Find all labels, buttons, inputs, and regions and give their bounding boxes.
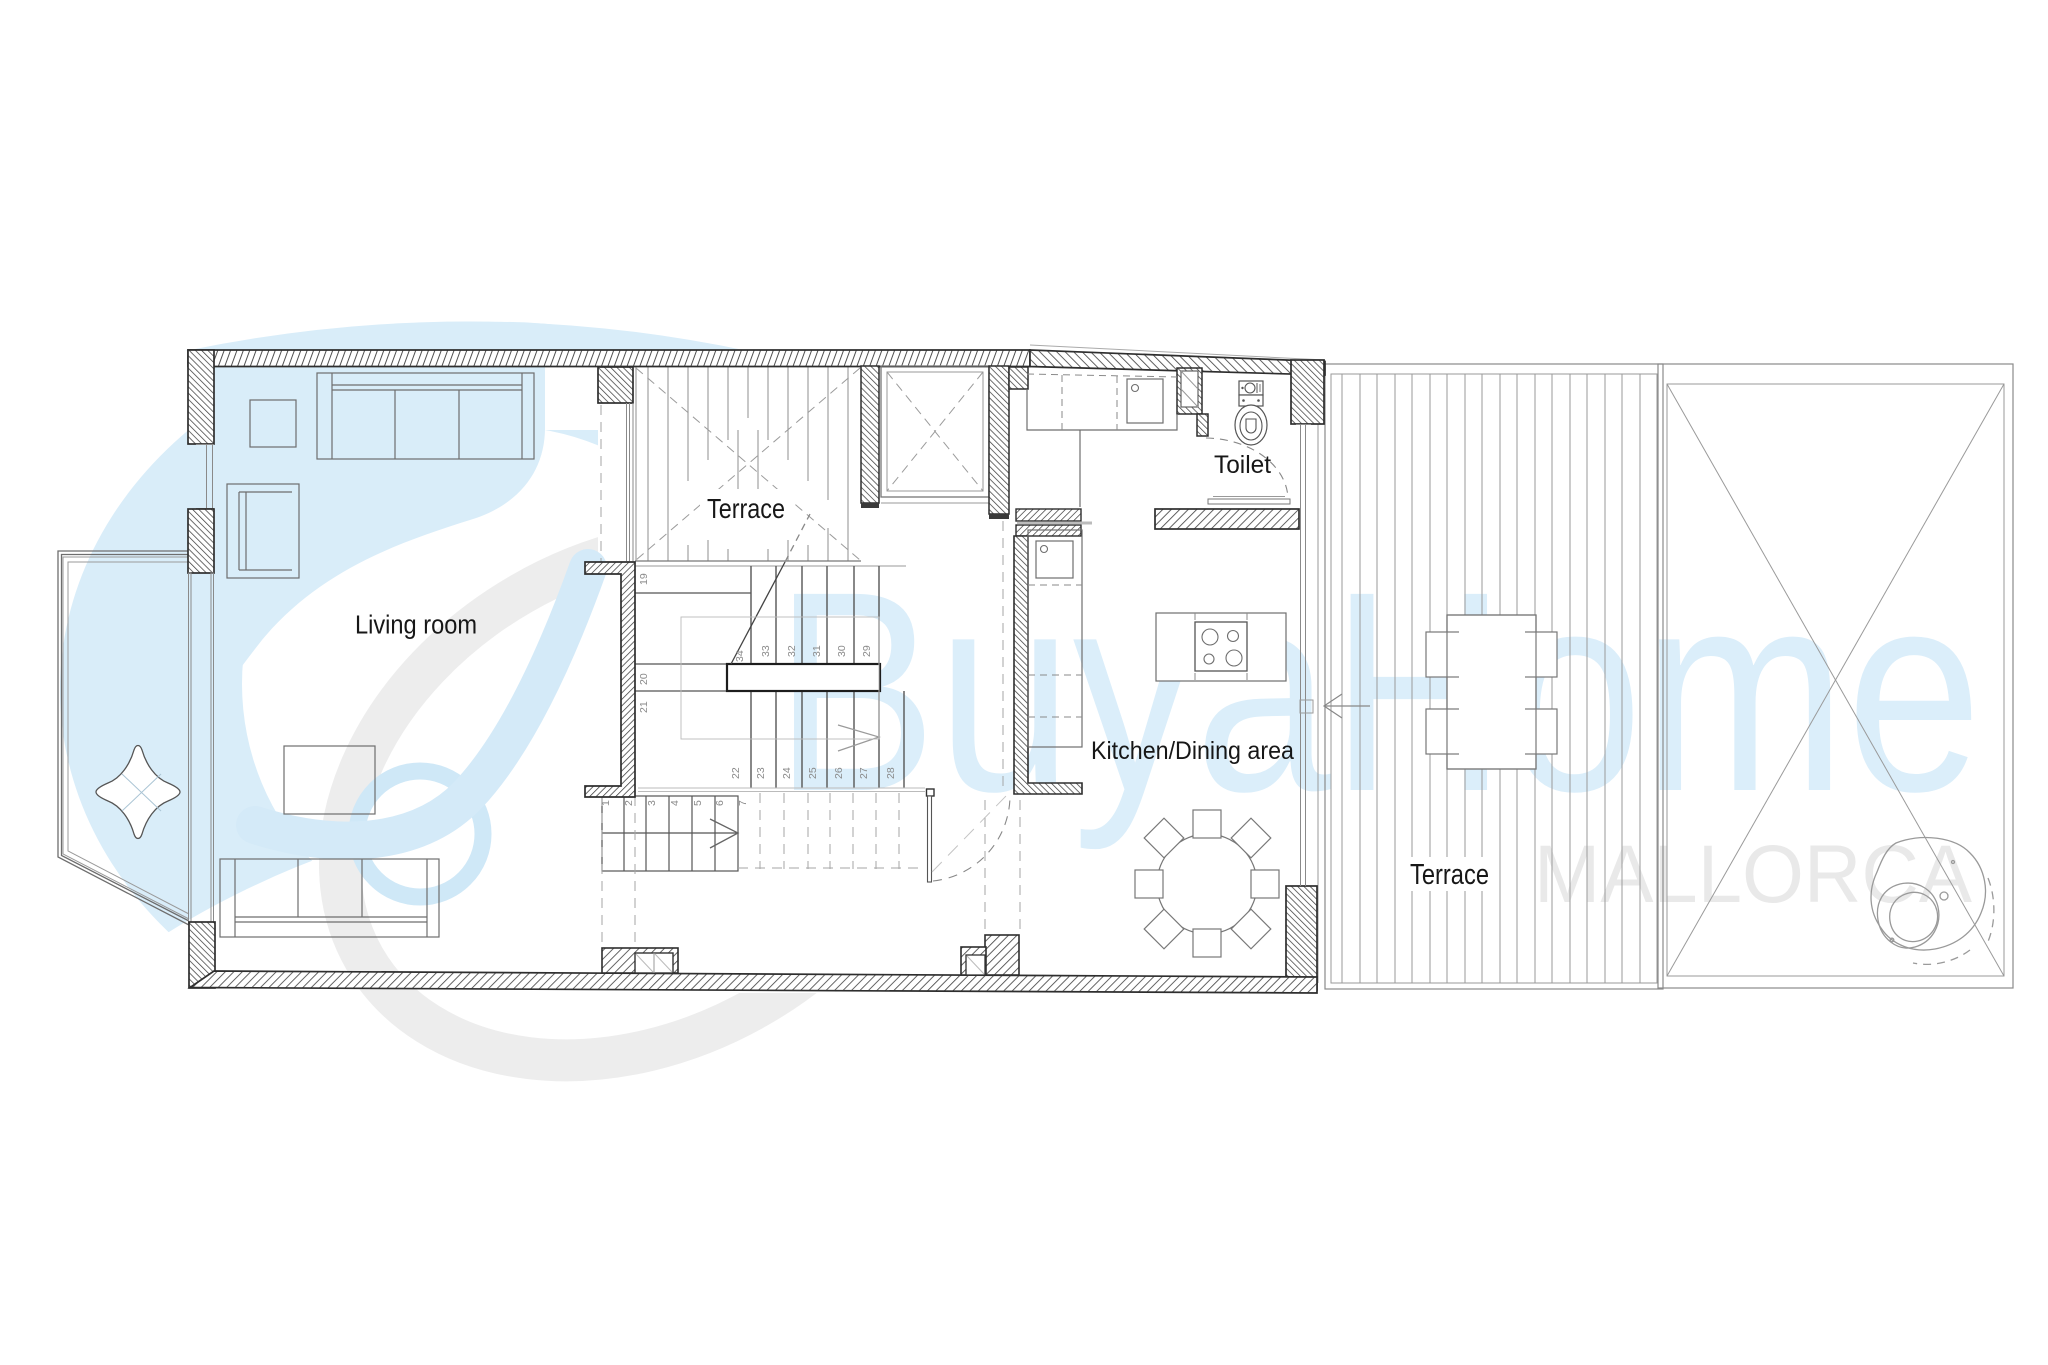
svg-text:25: 25 bbox=[807, 767, 819, 779]
svg-text:31: 31 bbox=[811, 645, 823, 657]
svg-text:28: 28 bbox=[885, 767, 897, 779]
svg-text:4: 4 bbox=[669, 800, 681, 806]
svg-text:MALLORCA: MALLORCA bbox=[1534, 829, 1972, 920]
svg-text:7: 7 bbox=[737, 800, 749, 806]
svg-text:Terrace: Terrace bbox=[707, 493, 785, 524]
svg-text:29: 29 bbox=[861, 645, 873, 657]
svg-text:Kitchen/Dining area: Kitchen/Dining area bbox=[1091, 737, 1294, 765]
svg-text:30: 30 bbox=[836, 645, 848, 657]
svg-text:1: 1 bbox=[600, 800, 612, 806]
svg-text:21: 21 bbox=[638, 701, 650, 713]
svg-text:34: 34 bbox=[734, 650, 746, 662]
svg-text:32: 32 bbox=[786, 645, 798, 657]
svg-text:26: 26 bbox=[833, 767, 845, 779]
svg-text:27: 27 bbox=[858, 767, 870, 779]
svg-text:33: 33 bbox=[760, 645, 772, 657]
svg-text:19: 19 bbox=[638, 573, 650, 585]
svg-text:24: 24 bbox=[781, 767, 793, 779]
svg-text:Living room: Living room bbox=[355, 612, 477, 640]
svg-text:2: 2 bbox=[623, 800, 635, 806]
svg-text:5: 5 bbox=[692, 800, 704, 806]
svg-text:BuyaHome: BuyaHome bbox=[774, 533, 1982, 852]
svg-text:23: 23 bbox=[755, 767, 767, 779]
svg-text:Toilet: Toilet bbox=[1214, 451, 1271, 479]
svg-text:6: 6 bbox=[714, 800, 726, 806]
svg-text:20: 20 bbox=[638, 673, 650, 685]
svg-text:Terrace: Terrace bbox=[1410, 859, 1489, 891]
svg-text:22: 22 bbox=[730, 767, 742, 779]
svg-text:3: 3 bbox=[646, 800, 658, 806]
